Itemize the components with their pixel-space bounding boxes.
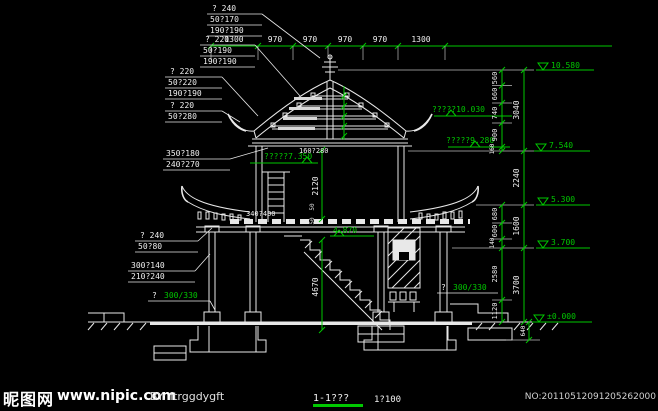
- small-gap-dim: 50: [309, 217, 316, 225]
- member-label: 190?190: [210, 26, 244, 35]
- plinth-dim: 640: [520, 325, 527, 336]
- right-inner-dim: 680: [491, 208, 499, 221]
- member-label: ? 240: [212, 4, 236, 13]
- member-label: ? 220: [205, 35, 229, 44]
- right-inner-dim: 900: [491, 129, 499, 142]
- right-outer-dim: 3700: [512, 275, 521, 294]
- member-label: 50?220: [168, 78, 197, 87]
- pile-size: 300/330: [453, 283, 487, 292]
- watermark-site-name: 昵图网: [3, 386, 54, 410]
- right-inner-dim: 600: [491, 225, 499, 238]
- member-label: 240?270: [166, 160, 200, 169]
- small-gap-dim: 50: [309, 203, 316, 211]
- elevation-value: 5.300: [551, 195, 575, 204]
- member-label: 190?190: [203, 57, 237, 66]
- member-label: 50?80: [138, 242, 162, 251]
- right-inner-dim: 160: [489, 143, 496, 154]
- right-outer-dim: 3040: [512, 100, 521, 119]
- top-dim-label: 970: [338, 35, 353, 44]
- pile-size: 300/330: [164, 291, 198, 300]
- member-label: 50?190: [203, 46, 232, 55]
- pile-prefix: ?: [441, 283, 446, 292]
- member-label: ? 220: [170, 101, 194, 110]
- cad-screenshot: 1300 970 970 970 970 1300 ? 240 50?170 1…: [0, 0, 658, 411]
- pile-prefix: ?: [152, 291, 157, 300]
- elevation-value: 7.540: [549, 141, 573, 150]
- right-inner-dim: 560: [491, 72, 499, 85]
- stair-landing-elevation: 4.870: [333, 226, 357, 235]
- member-label: ? 240: [140, 231, 164, 240]
- right-inner-dim: 660: [491, 88, 499, 101]
- member-label: 350?180: [166, 149, 200, 158]
- cad-canvas: 1300 970 970 970 970 1300 ? 240 50?170 1…: [0, 0, 658, 411]
- elevation-value: ±0.000: [547, 312, 576, 321]
- storey-height-dim: 4670: [311, 277, 320, 296]
- watermark-author: BY: ftrggdygft: [150, 390, 224, 403]
- ridge-elevation-note: ?????10.030: [432, 105, 485, 114]
- right-inner-dim: 1120: [491, 303, 499, 320]
- member-label: 50?170: [210, 15, 239, 24]
- top-dim-label: 970: [303, 35, 318, 44]
- right-outer-dim: 2240: [512, 168, 521, 187]
- top-dim-label: 970: [268, 35, 283, 44]
- top-dim-label: 1300: [411, 35, 430, 44]
- beam-size-label: 160?280: [299, 147, 329, 155]
- member-label: 300?140: [131, 261, 165, 270]
- elevation-value: 10.580: [551, 61, 580, 70]
- right-inner-dim: 740: [491, 107, 499, 120]
- storey-height-dim: 2120: [311, 176, 320, 195]
- right-inner-dim: 2580: [491, 266, 499, 283]
- member-label: 190?190: [168, 89, 202, 98]
- watermark-bar: 昵图网 www.nipic.com BY: ftrggdygft NO:2011…: [0, 384, 658, 411]
- elevation-value: 3.700: [551, 238, 575, 247]
- right-outer-dim: 1600: [512, 216, 521, 235]
- top-dim-label: 970: [373, 35, 388, 44]
- member-label: 210?240: [131, 272, 165, 281]
- eave-elevation-note: ?????9.280: [446, 136, 494, 145]
- watermark-serial: NO:20110512091205262000: [525, 392, 656, 402]
- member-label: ? 220: [170, 67, 194, 76]
- right-inner-dim: 140: [489, 237, 496, 248]
- member-label: 50?280: [168, 112, 197, 121]
- beam-size-label: 340?400: [246, 210, 276, 218]
